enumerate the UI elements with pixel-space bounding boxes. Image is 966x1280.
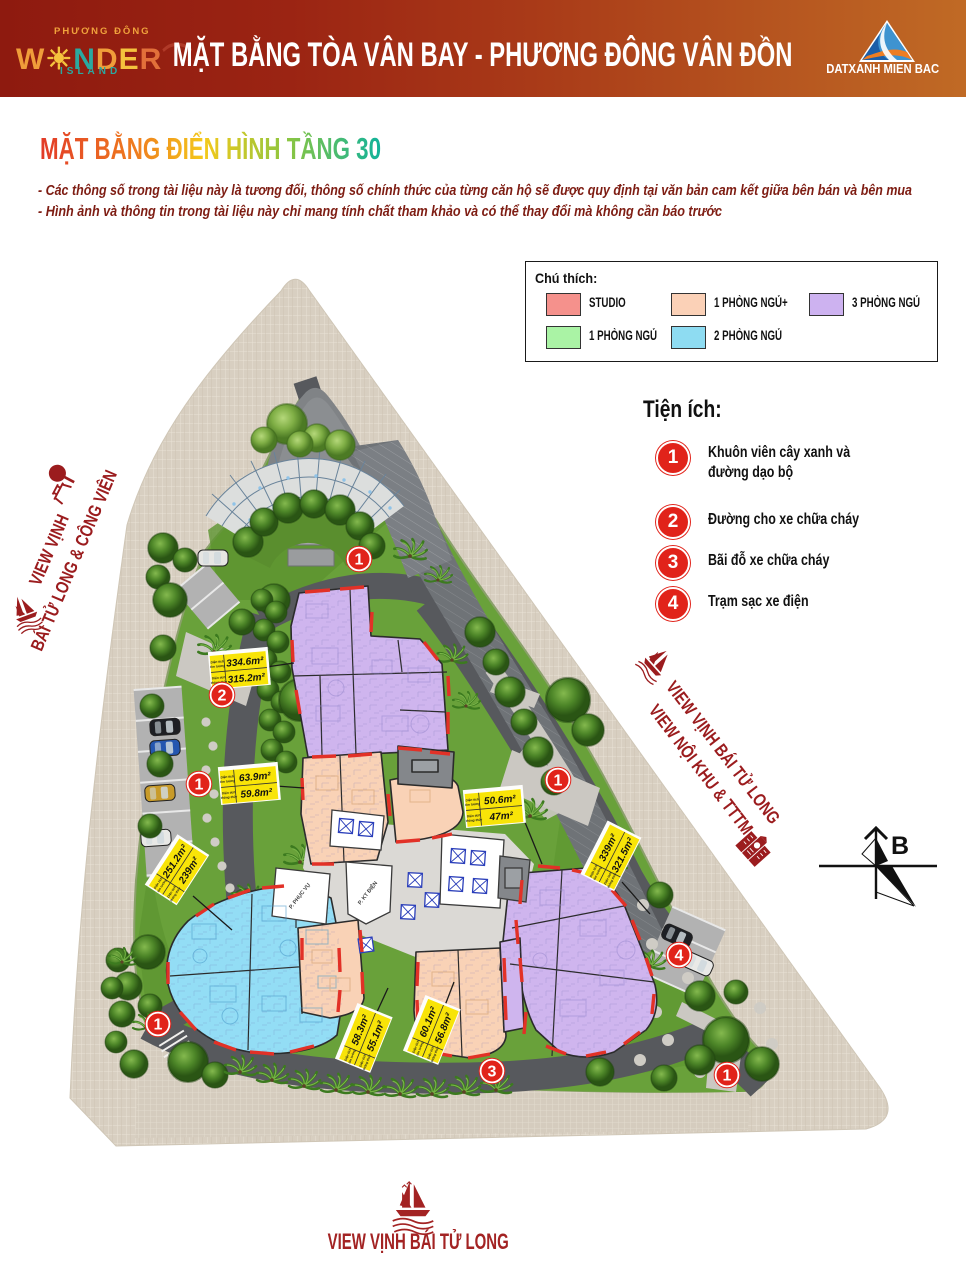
svg-text:47m²: 47m² <box>488 810 514 823</box>
svg-text:2: 2 <box>218 688 227 705</box>
svg-text:4: 4 <box>675 948 684 965</box>
svg-text:1: 1 <box>723 1068 732 1085</box>
svg-text:3: 3 <box>488 1064 497 1081</box>
svg-text:1: 1 <box>355 552 364 569</box>
svg-text:1: 1 <box>154 1017 163 1034</box>
svg-text:1: 1 <box>195 777 204 794</box>
svg-text:1: 1 <box>554 773 563 790</box>
svg-text:B: B <box>891 832 909 860</box>
